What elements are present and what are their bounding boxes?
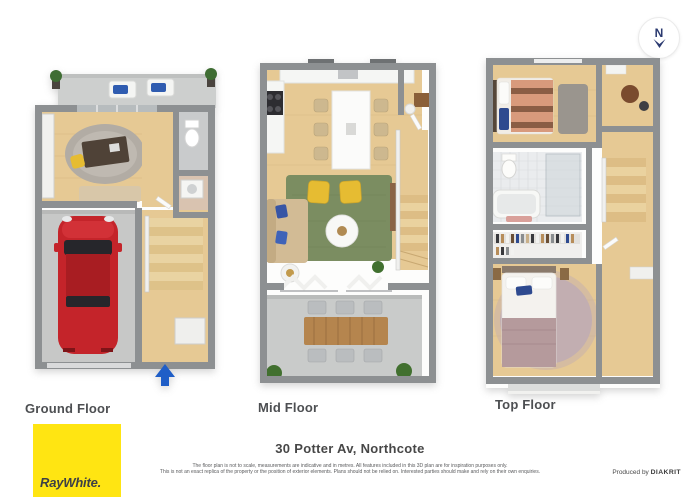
laundry: [177, 176, 208, 212]
walk-in-wardrobe: [492, 232, 582, 258]
disclaimer-text: The floor plan is not to scale, measurem…: [60, 463, 640, 475]
toilet: [185, 129, 199, 147]
bedside-table: [492, 268, 501, 280]
balcony: [508, 384, 600, 394]
compass-north-letter: N: [655, 28, 664, 38]
retreat-room: [602, 64, 660, 126]
top-floor-label: Top Floor: [495, 397, 556, 412]
cooktop: [265, 91, 283, 115]
front-patio: [58, 74, 216, 108]
compass-arrow-icon: [653, 39, 666, 48]
outdoor-table: [304, 317, 388, 345]
stairs: [396, 130, 428, 270]
side-table: [639, 101, 649, 111]
stairs: [145, 216, 203, 292]
garage: [42, 210, 135, 362]
bedroom-2: [492, 64, 596, 142]
skylight: [534, 59, 582, 63]
produced-by-label: Produced by: [612, 469, 649, 476]
garage-door: [47, 363, 131, 368]
producer-name: DIAKRIT: [651, 469, 681, 476]
kitchen-sink: [338, 70, 358, 79]
deck: [264, 295, 422, 383]
bathroom: [492, 152, 582, 222]
produced-by: Produced by DIAKRIT: [612, 469, 681, 476]
bedroom-rug: [558, 84, 588, 134]
potted-plant-icon: [372, 261, 384, 273]
top-floor-plan: [478, 50, 668, 400]
bedside-table: [560, 268, 569, 280]
toilet: [502, 160, 516, 178]
master-bedroom: [492, 264, 598, 376]
daybed: [79, 186, 141, 202]
storage-nook: [175, 318, 205, 344]
ground-floor-plan: [25, 50, 230, 395]
bath-mat: [506, 216, 532, 222]
disclaimer-line-2: This is not an exact replica of the prop…: [60, 469, 640, 475]
hall-desk: [414, 93, 430, 107]
shower: [546, 154, 580, 216]
entry-hall: [142, 210, 208, 362]
bathroom: [177, 112, 208, 170]
dining-area: [314, 91, 388, 169]
red-car: [54, 216, 122, 354]
wardrobe: [42, 114, 54, 198]
ground-floor-label: Ground Floor: [25, 401, 110, 416]
stairs: [602, 158, 646, 222]
raywhite-logo-text: RayWhite.: [40, 475, 101, 490]
mid-floor-label: Mid Floor: [258, 400, 318, 415]
landing-hall: [602, 132, 660, 376]
sofa: [266, 199, 308, 263]
mid-floor-plan: [252, 55, 447, 400]
linen-closet: [630, 267, 654, 279]
armchair: [621, 85, 639, 103]
hall-chair: [405, 104, 415, 114]
bed: [492, 78, 553, 134]
raywhite-logo: RayWhite.: [33, 424, 121, 497]
floorplan-page: N: [0, 0, 700, 500]
property-address: 30 Potter Av, Northcote: [0, 441, 700, 456]
master-bed: [502, 266, 556, 367]
